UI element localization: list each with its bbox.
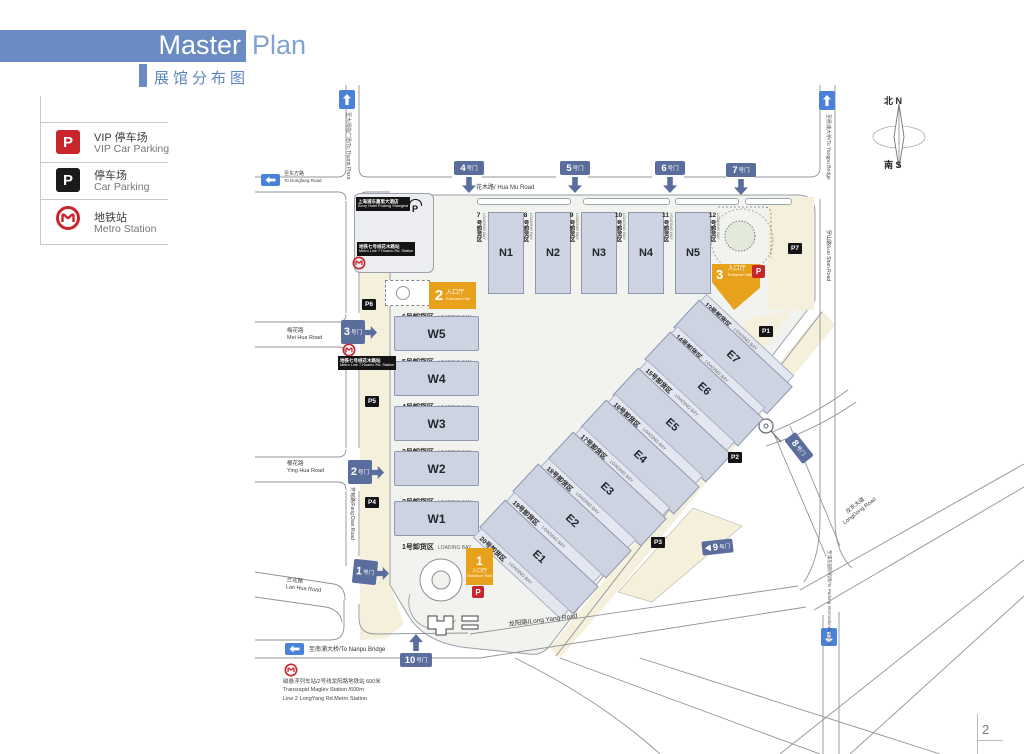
page-corner-lines <box>977 714 978 754</box>
metro-icon <box>55 205 81 231</box>
left-arrow-icon <box>290 646 300 653</box>
tree-icon <box>725 221 755 251</box>
direction-sign-left <box>261 174 280 186</box>
to-yangpu-bridge-label: 至杨浦大桥/To Yangpu Bridge <box>825 114 832 180</box>
up-arrow-icon <box>343 94 351 105</box>
to-nanpu-bridge-label: 至南浦大桥/To Nanpu Bridge <box>309 644 385 653</box>
page-corner-lines <box>977 740 1003 741</box>
compass-south-label: 南 S <box>884 158 902 171</box>
hall-n4: N4 <box>628 212 664 294</box>
hall-w1: W1 <box>394 501 479 536</box>
dock-apron <box>477 198 571 205</box>
fang-dian-road-label: 芳甸路/Fang Dian Road <box>349 487 356 540</box>
dock-apron <box>745 198 792 205</box>
hall-n5: N5 <box>675 212 711 294</box>
up-arrow-icon <box>823 95 831 106</box>
legend-hline <box>40 199 168 200</box>
left-arrow-icon <box>266 177 276 184</box>
loading-bay-1: 1号卸货区LOADING BAY <box>402 536 471 554</box>
dock-apron <box>583 198 670 205</box>
gate-9-arrow-icon <box>705 544 712 552</box>
luo-shan-road-label: 罗山路/Luo Shan Road <box>825 230 832 281</box>
gate-3-sign: 3号门 <box>341 320 365 344</box>
direction-sign-left <box>285 643 304 655</box>
title-tick <box>139 64 147 87</box>
forecourt-circle <box>396 286 410 300</box>
page-number: 2 <box>982 722 989 737</box>
covered-parking-icon: P <box>407 199 423 214</box>
metro-line7-label: 地铁七号线花木路站Metro Line 7 Huamu Rd. Station <box>338 356 396 370</box>
hall-n2: N2 <box>535 212 571 294</box>
parking-p4: P4 <box>365 497 379 508</box>
entrance-hall-2: 2 入口厅Entrance Hall <box>429 282 476 309</box>
parking-icon: P <box>56 168 80 192</box>
legend-hline <box>40 244 168 245</box>
gate-5-sign: 5号门 <box>560 161 590 175</box>
metro-line7-label: 地铁七号线花木路站Metro Line 7 Huamu Rd. Station <box>357 242 415 256</box>
hotel-label: 上海浦东嘉里大酒店Kerry Hotel Pudong Shanghai <box>356 197 410 211</box>
entrance-hall-1: 1 入口厅 Entrance Hall <box>466 548 493 585</box>
ying-hua-road-label: 樱花路Ying Hua Road <box>287 461 324 475</box>
loading-bay-7: 7号卸货区LOADING BAY <box>475 213 487 293</box>
legend-metro-en: Metro Station <box>94 223 156 235</box>
vip-parking-marker: P <box>752 265 765 278</box>
metro-icon <box>352 256 366 270</box>
loading-bay-10: 10号卸货区LOADING BAY <box>615 213 627 293</box>
dock-apron <box>675 198 739 205</box>
parking-p2: P2 <box>728 452 742 463</box>
parking-p7: P7 <box>788 243 802 254</box>
mei-hua-road-label: 梅花路Mei Hua Road <box>287 328 322 342</box>
metro-icon <box>342 343 356 357</box>
direction-sign-up <box>819 91 835 110</box>
hua-mu-road-label: 花木路/ Hua Mu Road <box>476 182 534 191</box>
legend-hline <box>40 162 168 163</box>
map-graphics <box>0 0 1024 754</box>
legend-vline <box>40 96 41 245</box>
loading-bay-11: 11号卸货区LOADING BAY <box>662 213 674 293</box>
hall-n1: N1 <box>488 212 524 294</box>
hall-w4: W4 <box>394 361 479 396</box>
plaza-inner-circle <box>432 571 450 589</box>
legend-vip-en: VIP Car Parking <box>94 143 169 155</box>
gate-6-sign: 6号门 <box>655 161 685 175</box>
metro-icon <box>284 663 298 677</box>
loading-bay-8: 8号卸货区LOADING BAY <box>522 213 534 293</box>
parking-p5: P5 <box>365 396 379 407</box>
gate-1-sign: 1号门 <box>352 559 378 585</box>
maglev-note: 磁悬浮列车站/2号线龙阳路地铁站 600米 Transrapid Maglev … <box>283 678 381 703</box>
gate-2-sign: 2号门 <box>348 460 372 484</box>
page-subtitle: 展馆分布图 <box>154 67 249 88</box>
to-thumb-plaza-label: 至大拇指广场/To Thumb Plaza <box>345 112 352 179</box>
vip-parking-marker: P <box>472 586 484 598</box>
master-plan-page: Master Plan 展馆分布图 P VIP 停车场 VIP Car Park… <box>0 0 1024 754</box>
compass-north-label: 北 N <box>884 94 902 107</box>
page-title-accent: Plan <box>252 30 306 62</box>
hall-n3: N3 <box>581 212 617 294</box>
hall-w3: W3 <box>394 406 479 441</box>
to-pudong-airport-label: 至浦东国际机场/To Pudong International Airport <box>826 550 832 645</box>
parking-p6: P6 <box>362 299 376 310</box>
gate-4-sign: 4号门 <box>454 161 484 175</box>
legend-hline <box>40 122 168 123</box>
gate-7-sign: 7号门 <box>726 163 756 177</box>
page-title-main: Master <box>0 30 246 62</box>
hall-w2: W2 <box>394 451 479 486</box>
loading-bay-9: 9号卸货区LOADING BAY <box>568 213 580 293</box>
to-dongfang-road-label: 至东方路To Dongfang Road <box>284 171 322 184</box>
parking-p1: P1 <box>759 326 773 337</box>
direction-sign-up <box>339 90 355 109</box>
vip-parking-icon: P <box>56 130 80 154</box>
gate-10-sign: 10号门 <box>400 653 432 667</box>
parking-p3: P3 <box>651 537 665 548</box>
legend-parking-en: Car Parking <box>94 181 149 193</box>
hall-w5: W5 <box>394 316 479 351</box>
